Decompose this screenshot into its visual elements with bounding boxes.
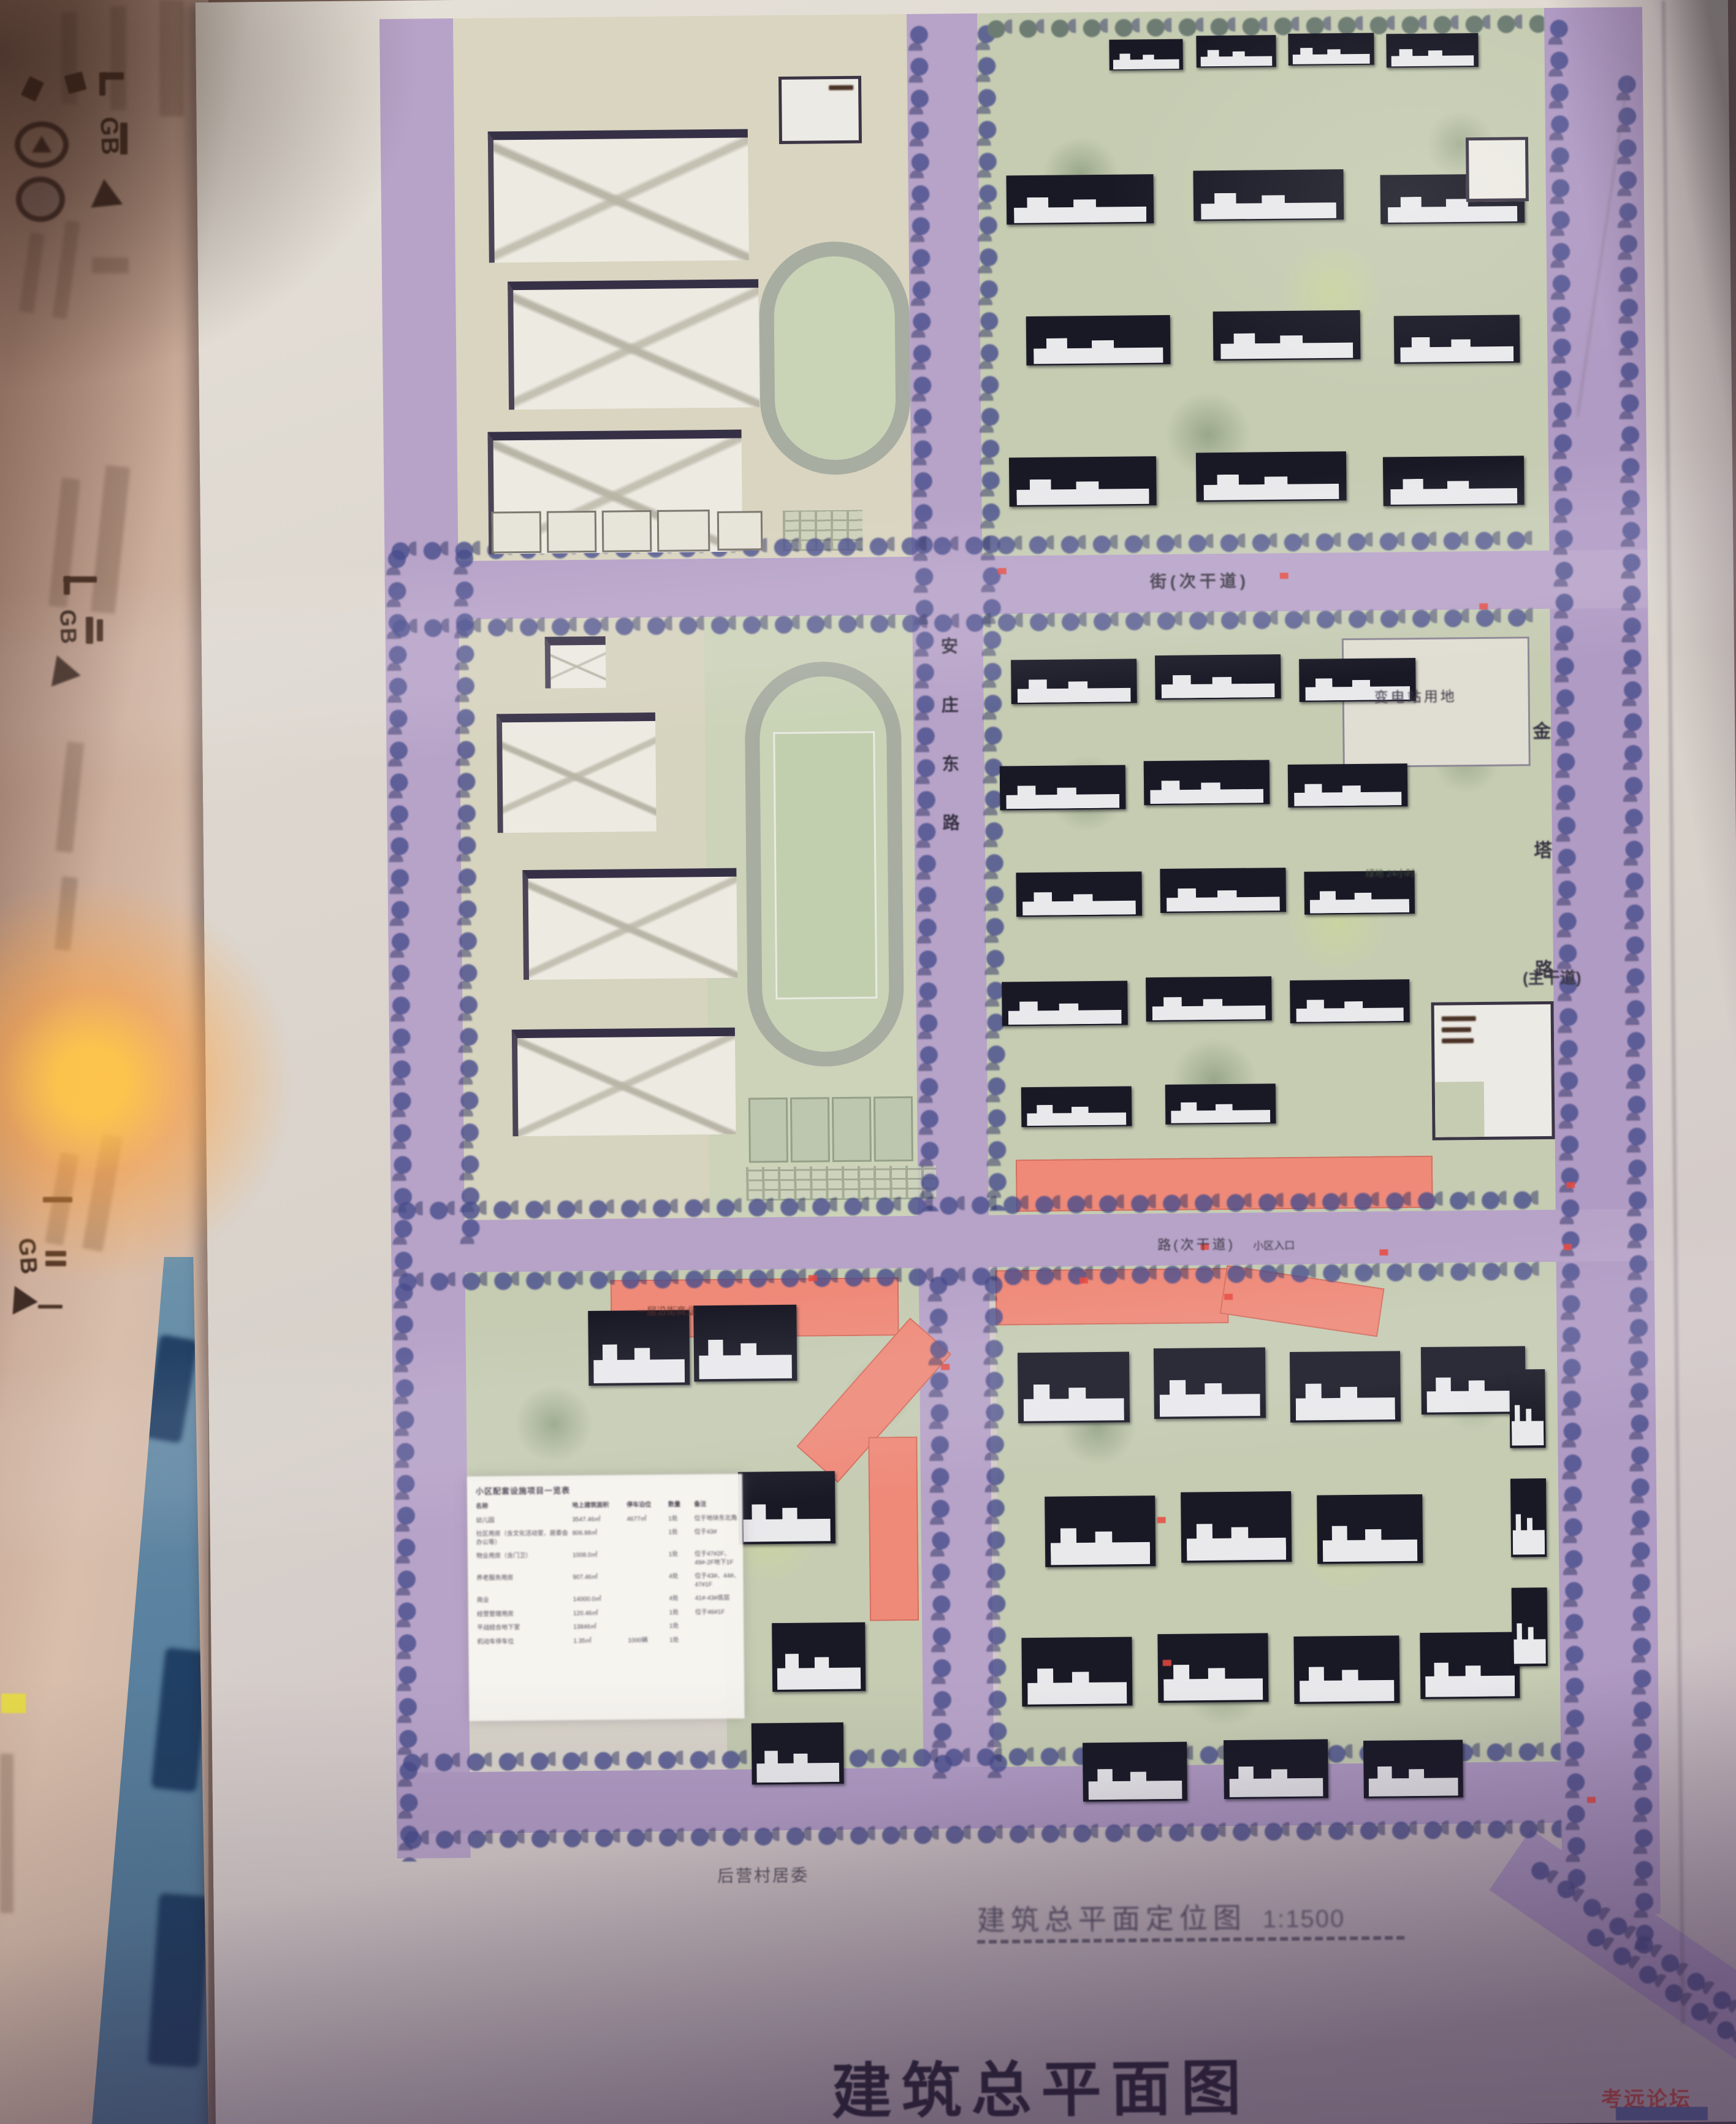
building-roof	[1187, 1523, 1287, 1561]
building-roof	[777, 1653, 861, 1690]
table-cell: 14000.0㎡	[573, 1595, 625, 1603]
table-cell	[628, 1608, 667, 1617]
table-header-cell: 名称	[476, 1502, 569, 1511]
residential-building	[1394, 315, 1520, 364]
green-space-label: 绿地 24小时	[1365, 866, 1415, 880]
table-cell: 位于46#1F	[695, 1608, 747, 1616]
table-cell: 幼儿园	[476, 1516, 569, 1525]
dash-glyph	[38, 1305, 63, 1308]
school-annex-building	[717, 511, 763, 551]
table-cell: 1000辆	[628, 1636, 667, 1645]
table-header-cell: 地上建筑面积	[572, 1501, 624, 1510]
table-cell: 位于43#	[695, 1528, 747, 1545]
building-roof	[1425, 1662, 1515, 1697]
table-cell: 1处	[669, 1622, 693, 1630]
residential-building	[1021, 1637, 1132, 1707]
table-cell: 平战结合地下室	[477, 1623, 571, 1632]
table-cell: 1处	[669, 1550, 693, 1567]
watermark-bar	[1616, 2107, 1708, 2120]
road-char: 路	[942, 809, 959, 834]
tree-row	[921, 1269, 958, 1778]
shops-label: 一层沿街商业	[637, 1302, 696, 1318]
building-roof	[1152, 996, 1266, 1020]
building-roof	[1293, 47, 1370, 64]
residential-building	[1420, 1632, 1520, 1699]
residential-building	[1386, 33, 1479, 67]
table-cell	[628, 1622, 667, 1631]
building-roof	[1159, 1379, 1260, 1416]
residential-building	[1045, 1496, 1155, 1567]
building-roof	[1027, 1104, 1126, 1126]
blue-glyph-blob	[142, 1334, 199, 1444]
entrance-red-mark	[1379, 1249, 1388, 1255]
entrance-red-mark	[1563, 1244, 1572, 1250]
school-annex-building	[657, 510, 710, 552]
table-header-cell: 数量	[668, 1500, 691, 1509]
road-char: 金	[1532, 716, 1551, 743]
table-cell: 社区用房（含文化活动室、居委会办公等）	[476, 1529, 570, 1546]
table-cell	[628, 1595, 667, 1603]
yellow-chip	[1, 1694, 26, 1713]
standard-number-bar	[86, 617, 93, 644]
entrance-label: 小区入口	[1253, 1237, 1295, 1253]
tree-row	[447, 543, 488, 1248]
building-roof	[1203, 473, 1339, 500]
building-roof	[1034, 337, 1163, 364]
building-roof	[1299, 1666, 1394, 1702]
building-roof	[1296, 999, 1404, 1022]
faded-text-column	[56, 741, 85, 853]
building-roof	[1512, 1405, 1544, 1446]
tree-row	[397, 1812, 1561, 1856]
building-roof	[1162, 674, 1275, 698]
residential-building	[1026, 315, 1171, 365]
standard-number-bar	[120, 123, 128, 155]
building-roof	[1150, 780, 1263, 804]
residential-building	[1196, 35, 1276, 67]
table-header-cell: 停车泊位	[626, 1501, 666, 1510]
drawing-caption-text: 建筑总平面定位图	[977, 1902, 1247, 1936]
generated-map-features	[196, 0, 1736, 2124]
certification-a-mark-icon	[15, 121, 69, 168]
road-char: 安	[941, 633, 958, 657]
table-cell: 商业	[477, 1595, 571, 1605]
residential-building	[1293, 1635, 1399, 1704]
drawing-scale: 1:1500	[1263, 1905, 1346, 1933]
residential-building	[1317, 1494, 1423, 1564]
table-header-cell: 备注	[694, 1500, 746, 1509]
building-roof	[1426, 1377, 1521, 1413]
residential-building	[1196, 451, 1347, 502]
table-title: 小区配套设施项目一览表	[476, 1483, 736, 1497]
residential-building	[1160, 868, 1286, 913]
residential-building	[1016, 871, 1142, 917]
table-cell	[627, 1529, 666, 1546]
building-roof	[1229, 1766, 1323, 1797]
substation-label: 变电站用地	[1374, 684, 1457, 706]
photo-scene: GB GB GB	[0, 0, 1736, 2124]
residential-building	[1509, 1369, 1545, 1448]
building-roof	[1322, 1525, 1417, 1562]
residential-building	[1181, 1491, 1292, 1563]
residential-building	[1510, 1478, 1547, 1557]
road-class-label: (主干道)	[1523, 965, 1582, 988]
road-label-jinta: 金 塔 路	[1532, 716, 1553, 981]
gb-standard-label: GB	[55, 609, 82, 645]
residential-building	[1002, 981, 1128, 1026]
school-building	[522, 868, 737, 980]
building-roof	[1310, 890, 1409, 914]
table-cell	[627, 1573, 666, 1590]
table-cell: 经营管理用房	[477, 1610, 571, 1619]
school-building	[497, 712, 657, 833]
building-roof	[699, 1339, 792, 1380]
tree-row	[976, 1269, 1013, 1778]
building-roof	[1201, 192, 1336, 220]
residential-building	[1193, 169, 1344, 221]
road-char: 庄	[942, 692, 959, 716]
table-cell: 位于43#、44#、47#1F	[695, 1572, 747, 1589]
table-cell: 907.46㎡	[573, 1573, 625, 1590]
blue-glyph-blob	[147, 1893, 210, 2068]
triangle-mark-icon	[51, 655, 83, 692]
building-roof	[756, 1750, 839, 1782]
school-annex-building	[547, 511, 597, 553]
gb-standard-label: GB	[13, 1237, 42, 1277]
faded-text-column	[55, 876, 78, 951]
building-roof	[1400, 337, 1513, 362]
a-mark-triangle-icon	[32, 136, 51, 152]
residential-building	[1288, 33, 1374, 66]
faded-text-column	[82, 1133, 123, 1251]
entrance-red-mark	[998, 568, 1007, 574]
table-cell	[627, 1551, 666, 1568]
residential-building	[1383, 456, 1525, 506]
road-label-middle: 路(次干道)	[1157, 1234, 1235, 1254]
residential-building	[752, 1722, 844, 1784]
table-cell: 41#-43#底层	[695, 1594, 747, 1603]
bracket-glyph	[64, 576, 70, 595]
building-roof	[1022, 892, 1136, 915]
building-roof	[1006, 785, 1119, 809]
building-roof	[1088, 1768, 1182, 1800]
table-cell: 1处	[669, 1608, 693, 1617]
stamp-glyph	[64, 72, 87, 94]
entrance-red-mark	[1280, 573, 1289, 579]
entrance-red-mark	[1587, 1797, 1596, 1803]
table-cell: 养老服务用房	[476, 1573, 570, 1591]
facilities-table: 小区配套设施项目一览表 名称地上建筑面积停车泊位数量备注幼儿园3547.46㎡4…	[467, 1474, 745, 1721]
faded-text-column	[91, 465, 131, 614]
residential-building	[1224, 1739, 1328, 1799]
residential-building	[738, 1471, 836, 1545]
table-cell: 120.46㎡	[573, 1609, 625, 1618]
table-cell: 3547.46㎡	[572, 1515, 624, 1524]
blue-poster-edge-band	[92, 1257, 208, 2124]
building-roof	[1390, 478, 1517, 505]
table-grid: 名称地上建筑面积停车泊位数量备注幼儿园3547.46㎡4677㎡1处位于地块东北…	[476, 1500, 737, 1646]
building-roof	[1113, 53, 1179, 69]
residential-building	[1155, 654, 1281, 700]
residential-building	[1512, 1587, 1548, 1667]
building-roof	[1014, 196, 1146, 223]
faded-text-column	[52, 220, 80, 319]
residential-building	[1083, 1742, 1187, 1802]
watermark: 考远论坛	[1601, 2082, 1692, 2112]
standard-number-bar	[45, 1261, 66, 1266]
table-cell: 1处	[669, 1636, 693, 1645]
gb-standard-label: GB	[94, 117, 123, 157]
table-cell: 806.88㎡	[573, 1529, 625, 1546]
residential-building	[1018, 1352, 1130, 1424]
table-cell: 1处	[668, 1515, 691, 1523]
residential-building	[1011, 659, 1137, 704]
table-cell: 13846㎡	[573, 1622, 625, 1631]
residential-building	[1009, 456, 1157, 506]
school-building	[488, 129, 749, 262]
building-roof	[1391, 48, 1474, 67]
road-label-anzhuang: 安 庄 东 路	[941, 633, 960, 834]
standard-number-bar	[45, 1251, 66, 1256]
entrance-red-mark	[1079, 1277, 1088, 1283]
residential-building	[1146, 976, 1272, 1022]
tree-row	[392, 1254, 1544, 1298]
stamp-glyph	[99, 72, 105, 96]
road-char: 东	[942, 751, 959, 775]
building-roof	[593, 1343, 685, 1383]
stamp-glyph	[21, 76, 44, 102]
table-cell: 物业用房（含门卫）	[476, 1551, 570, 1568]
residential-building	[1165, 1083, 1276, 1125]
residential-building	[588, 1310, 690, 1386]
sheet-title: 建筑总平面图	[831, 2039, 1251, 2124]
school-building	[508, 279, 759, 410]
residential-building	[1109, 39, 1182, 71]
school-annex-building	[492, 511, 542, 554]
building-roof	[1016, 478, 1149, 505]
residential-building	[1007, 174, 1154, 224]
faded-text-column	[19, 232, 45, 313]
bracket-glyph	[43, 1197, 72, 1202]
building-roof	[1369, 1766, 1458, 1797]
residential-building	[1290, 979, 1410, 1023]
residential-building	[1144, 760, 1270, 805]
stamp-glyph	[103, 72, 124, 80]
tree-row	[1610, 68, 1664, 1957]
residential-building	[1154, 1347, 1266, 1419]
standard-number-bar	[97, 619, 103, 641]
building-roof	[1294, 783, 1402, 806]
round-seal-icon	[16, 177, 65, 222]
residential-building	[693, 1305, 797, 1382]
building-roof	[1018, 679, 1131, 703]
building-roof	[1008, 1001, 1122, 1025]
entrance-red-mark	[1566, 1182, 1575, 1188]
white-tower-building	[1466, 137, 1529, 202]
table-cell: 4处	[669, 1594, 692, 1603]
residential-building	[1021, 1087, 1132, 1128]
table-cell	[695, 1622, 747, 1630]
entrance-red-mark	[1163, 1660, 1171, 1666]
faded-text-column	[0, 1754, 13, 1913]
building-roof	[1200, 50, 1272, 67]
tree-row	[390, 1183, 1543, 1227]
residential-building	[1290, 1351, 1401, 1423]
building-roof	[1027, 1668, 1127, 1705]
table-cell: 机动车停车位	[477, 1637, 571, 1646]
road-label-top: 街(次干道)	[1150, 568, 1249, 593]
school-building	[545, 636, 606, 689]
table-cell: 4677㎡	[626, 1515, 666, 1523]
entrance-red-mark	[809, 1275, 817, 1281]
drawing-caption: 建筑总平面定位图1:1500	[976, 1895, 1345, 1939]
residential-building	[1213, 310, 1361, 361]
triangle-mark-icon	[13, 1286, 39, 1316]
school-building	[512, 1028, 736, 1136]
building-roof	[1163, 1664, 1263, 1701]
building-roof	[1167, 888, 1280, 912]
residential-building	[1157, 1633, 1268, 1703]
table-cell: 位于47#2F、49#-2F地下1F	[695, 1550, 747, 1567]
building-roof	[1024, 1383, 1124, 1421]
village-committee-label: 后营村居委	[717, 1862, 809, 1887]
building-roof	[1295, 1383, 1395, 1420]
building-roof	[1171, 1102, 1270, 1123]
entrance-red-mark	[1157, 1517, 1166, 1523]
table-cell: 1008.0㎡	[573, 1551, 625, 1568]
residential-building	[1288, 763, 1408, 808]
table-cell	[695, 1635, 747, 1644]
entrance-red-mark	[1479, 603, 1488, 609]
table-cell: 位于地块东北角	[694, 1514, 746, 1522]
master-plan-drawing: 金 塔 路 (主干道) 安 庄 东 路 街(次干道) 路(次干道) 小区入口 变…	[196, 0, 1736, 2124]
blue-glyph-blob	[151, 1648, 211, 1792]
building-roof	[1220, 332, 1353, 359]
building-roof	[743, 1503, 831, 1542]
entrance-red-mark	[941, 1364, 950, 1370]
table-cell: 1处	[668, 1528, 692, 1545]
building-roof	[1051, 1527, 1151, 1565]
school-annex-building	[602, 510, 652, 552]
entrance-red-mark	[1224, 1294, 1233, 1300]
road-char: 塔	[1534, 835, 1552, 862]
building-roof	[1512, 1514, 1545, 1555]
residential-building	[1363, 1740, 1463, 1798]
site-plan-poster: 金 塔 路 (主干道) 安 庄 东 路 街(次干道) 路(次干道) 小区入口 变…	[196, 0, 1736, 2124]
faded-text-column	[110, 6, 126, 110]
adjacent-poster: GB GB GB	[0, 0, 208, 2124]
building-roof	[1513, 1623, 1546, 1664]
residential-building	[772, 1622, 866, 1692]
triangle-mark-icon	[88, 177, 123, 207]
faded-text-column	[159, 0, 184, 117]
table-cell: 1.35㎡	[573, 1637, 625, 1645]
residential-building	[1000, 765, 1126, 811]
table-cell: 4处	[669, 1572, 693, 1589]
faded-text-row	[92, 258, 129, 273]
